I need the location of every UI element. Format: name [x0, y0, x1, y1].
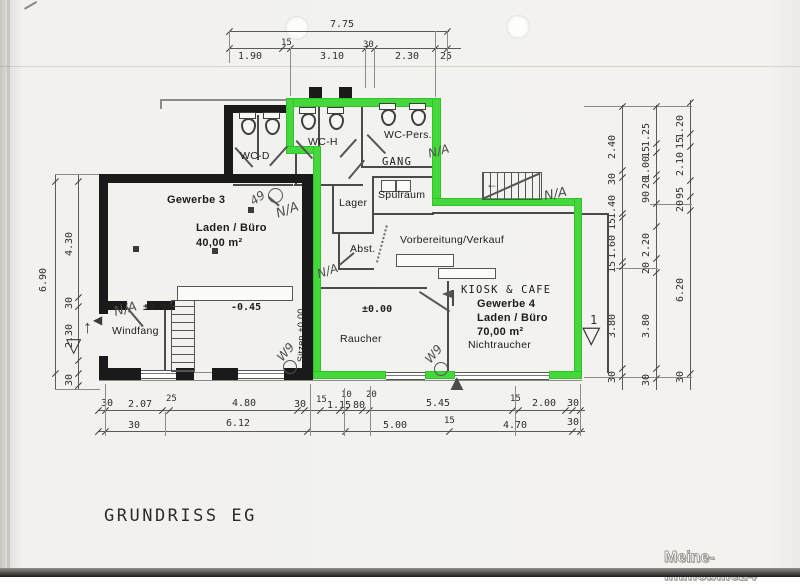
door-swing — [269, 146, 288, 166]
handwritten-circle — [434, 362, 448, 376]
steps — [171, 300, 195, 372]
dim-label: 5.45 — [426, 399, 450, 409]
counter — [396, 254, 454, 267]
entrance-triangle-icon: ▽ — [582, 324, 600, 348]
dim-label: 4.30 — [65, 226, 75, 262]
dim-label: 2.00 — [532, 399, 556, 409]
extension-line — [55, 174, 100, 175]
level-mark: ±0.00 — [143, 303, 173, 313]
window — [386, 372, 425, 380]
window — [455, 372, 549, 380]
electrical-symbol — [248, 207, 254, 213]
wall-segment — [212, 368, 238, 380]
dimension-line — [55, 174, 56, 390]
dim-label: 30 — [642, 362, 652, 398]
dim-label: 20 — [642, 250, 652, 286]
extension-line — [165, 412, 166, 436]
scan-bottom-edge — [0, 568, 800, 577]
level-mark: ±0.00 — [362, 305, 392, 315]
flag-marker — [442, 290, 452, 298]
room-label-gewerbe4: Gewerbe 4 — [477, 298, 535, 311]
highlight-wall-segment — [549, 371, 582, 379]
highlight-wall-segment — [574, 198, 582, 379]
dimension-line — [98, 431, 585, 432]
pen-mark — [24, 1, 37, 9]
flag-marker-pole — [452, 290, 454, 306]
dim-label: 15 — [444, 417, 455, 426]
extension-line — [55, 389, 100, 390]
extension-line — [374, 48, 375, 88]
scanned-floor-plan-page: 7.75 1.90 15 3.10 30 2.30 25 6.90 4.30 3… — [0, 0, 800, 577]
base-line — [99, 380, 582, 381]
dim-label: 2.40 — [608, 129, 618, 165]
dim-label: 2.07 — [128, 400, 152, 410]
entrance-number: 1 — [590, 314, 597, 326]
entrance-triangle-icon: ▽ — [66, 336, 81, 356]
entrance-triangle-icon: ◀ — [93, 314, 102, 326]
partition-wall — [374, 213, 434, 215]
room-label-kiosk: KIOSK & CAFE — [461, 284, 551, 296]
extension-line — [447, 31, 448, 61]
wall-segment — [224, 105, 233, 182]
dimension-line — [656, 105, 657, 390]
extension-line — [584, 106, 692, 107]
room-label-raucher: Raucher — [340, 333, 382, 345]
toilet — [329, 113, 344, 130]
extension-line — [290, 48, 291, 96]
dim-label: 5.00 — [383, 421, 407, 431]
dim-label: 25 — [166, 395, 177, 404]
extension-line — [515, 386, 516, 436]
room-label-wc-h: WC-H — [308, 136, 338, 148]
partition-wall — [164, 303, 166, 370]
punch-hole — [506, 15, 530, 39]
extension-line — [229, 31, 230, 63]
handwritten-note: 49 — [248, 189, 267, 208]
door-swing — [340, 139, 357, 158]
extension-line — [310, 384, 311, 436]
dim-label: 2.30 — [395, 52, 419, 62]
dim-label: 30 — [676, 359, 686, 395]
dim-label: 10 — [341, 391, 352, 400]
room-label-gewerbe4-use: Laden / Büro — [477, 312, 548, 325]
dim-label: 20 — [366, 391, 377, 400]
drawing-title: GRUNDRISS EG — [104, 506, 257, 526]
dim-label: 20 — [676, 188, 686, 224]
dimension-line — [622, 105, 623, 390]
room-label-abst: Abst. — [350, 243, 375, 255]
dim-label: 6.20 — [676, 272, 686, 308]
partition-wall — [321, 287, 427, 289]
dim-label: 90 — [642, 179, 652, 215]
partition-wall — [233, 184, 293, 186]
dim-label: 3.80 — [608, 308, 618, 344]
extension-line — [435, 31, 436, 97]
partition-wall — [332, 184, 334, 234]
punch-hole — [285, 16, 309, 40]
handwritten-scribble — [376, 225, 388, 262]
exterior-wall-line — [160, 99, 162, 109]
room-label-gewerbe4-area: 70,00 m² — [477, 326, 523, 339]
extension-line — [344, 388, 345, 436]
room-label-windfang: Windfang — [112, 325, 159, 337]
dim-label: 6.90 — [39, 262, 49, 298]
dim-label: 7.75 — [330, 20, 354, 30]
handwritten-circle — [283, 360, 297, 374]
table — [177, 286, 293, 301]
extension-line — [365, 48, 366, 88]
exterior-wall-line — [582, 213, 609, 215]
partition-wall — [374, 176, 432, 178]
paper-crease — [0, 66, 800, 67]
wall-segment — [99, 368, 141, 380]
dim-label: 4.80 — [232, 399, 256, 409]
watermark: Meine-Immobilie24 — [664, 549, 800, 585]
dimension-line — [229, 48, 461, 49]
dimension-line — [229, 31, 449, 32]
dim-label: 30 — [608, 359, 618, 395]
electrical-symbol — [133, 246, 139, 252]
dim-label: 3.80 — [642, 308, 652, 344]
room-label-wc-pers: WC-Pers. — [384, 129, 432, 141]
highlight-wall-segment — [313, 146, 321, 379]
room-label-nichtraucher: Nichtraucher — [468, 339, 531, 351]
room-label-spuelraum: Spülraum — [378, 189, 425, 201]
handwritten-note: N/A — [427, 142, 451, 159]
dim-label: 15 — [608, 249, 618, 285]
toilet — [265, 118, 280, 135]
toilet — [301, 113, 316, 130]
dim-label: 30 — [65, 285, 75, 321]
note-sitzen: Sitzen ±0.00 — [296, 308, 306, 362]
window — [238, 370, 284, 379]
highlight-wall-segment — [313, 371, 386, 379]
toilet — [411, 109, 426, 126]
level-mark: -0.45 — [231, 303, 261, 313]
wall-segment — [224, 105, 294, 113]
room-label-gewerbe3-use: Laden / Büro — [196, 222, 267, 235]
stair-direction-arrow-icon: ← — [486, 178, 498, 190]
dim-label: 3.10 — [320, 52, 344, 62]
dim-label: 15 — [316, 396, 327, 405]
entrance-arrow-icon: ↑ — [83, 318, 92, 336]
extension-line — [370, 386, 371, 436]
highlight-wall-segment — [286, 98, 294, 153]
chimney-block — [309, 87, 322, 98]
extension-line — [580, 384, 581, 436]
room-label-gewerbe3: Gewerbe 3 — [167, 194, 225, 207]
door-opening — [194, 372, 212, 373]
wall-segment — [99, 174, 313, 183]
chimney-block — [339, 87, 352, 98]
room-label-lager: Lager — [339, 197, 367, 209]
wall-segment — [99, 174, 108, 314]
room-label-gewerbe3-area: 40,00 m² — [196, 237, 242, 250]
partition-wall — [432, 212, 574, 214]
paper-edge-shadow — [7, 0, 10, 577]
exterior-wall-line — [607, 213, 609, 373]
counter — [438, 268, 496, 279]
door-swing — [348, 160, 365, 179]
partition-wall — [361, 103, 363, 168]
toilet — [381, 109, 396, 126]
toilet — [241, 118, 256, 135]
partition-wall — [372, 176, 374, 234]
dim-label: 6.12 — [226, 419, 250, 429]
room-label-vorbereitung: Vorbereitung/Verkauf — [400, 234, 504, 246]
dim-label: 30 — [65, 362, 75, 398]
entrance-triangle-icon: ▲ — [446, 372, 468, 394]
dim-label: 30 — [567, 418, 579, 428]
dim-label: 1.90 — [238, 52, 262, 62]
room-label-wc-d: WC-D — [240, 150, 270, 162]
dim-label: 30 — [128, 421, 140, 431]
exterior-wall-line — [160, 99, 287, 101]
room-label-gang: GANG — [382, 156, 412, 168]
partition-wall — [338, 268, 374, 270]
extension-line — [105, 384, 106, 436]
